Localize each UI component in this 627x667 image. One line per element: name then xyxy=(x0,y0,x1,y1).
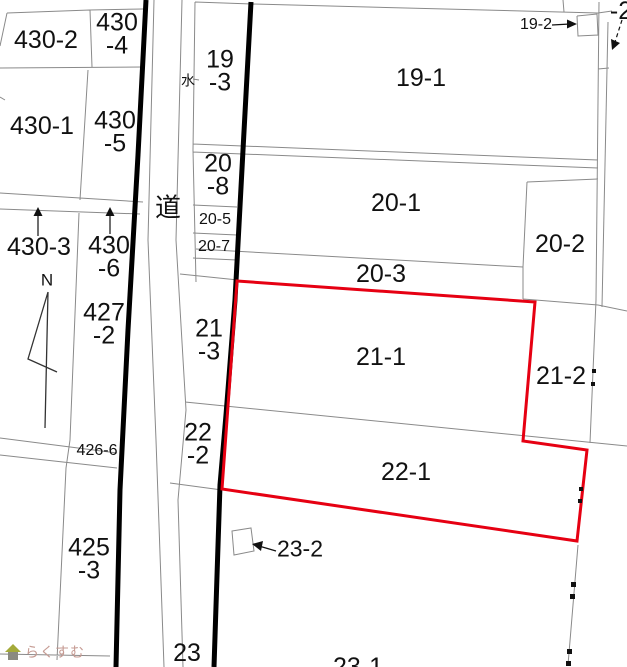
parcel-23-2-square xyxy=(232,528,254,555)
parcel-label-20-3: 20-3 xyxy=(356,263,406,286)
north-label: N xyxy=(41,272,53,287)
parcel-label-23-1: 23-1 xyxy=(333,656,383,667)
parcel-label-426-6: 426-6 xyxy=(77,444,118,458)
parcel-label-430-1: 430-1 xyxy=(10,115,74,138)
parcel-label-430-2: 430-2 xyxy=(14,29,78,52)
parcel-label-425-3: 425 -3 xyxy=(68,537,110,582)
parcel-label-19-2: 19-2 xyxy=(520,18,552,32)
north-arrow xyxy=(28,292,57,428)
parcel-label-22-2: 22 -2 xyxy=(184,422,212,467)
cadastral-map: 430-2 430 -4 430-1 430 -5 430-3 430 -6 4… xyxy=(0,0,627,667)
parcel-label-23-2: 23-2 xyxy=(277,539,323,560)
parcel-label-20-1: 20-1 xyxy=(371,192,421,215)
parcel-label-430-5: 430 -5 xyxy=(94,110,136,155)
parcel-label-427-2: 427 -2 xyxy=(83,302,125,347)
parcel-label-20-7: 20-7 xyxy=(198,240,230,254)
parcel-label-21-3: 21 -3 xyxy=(195,318,223,363)
house-icon xyxy=(5,643,22,660)
parcel-label-20-8: 20 -8 xyxy=(204,153,232,198)
parcel-label-21-1: 21-1 xyxy=(356,346,406,369)
parcel-label-21-2: 21-2 xyxy=(536,365,586,388)
edge-parcel-label-partial: -2 xyxy=(610,0,627,22)
parcel-label-19-1: 19-1 xyxy=(396,67,446,90)
parcel-label-23: 23 xyxy=(173,642,201,665)
parcel-label-430-3: 430-3 xyxy=(7,236,71,259)
parcel-label-22-1: 22-1 xyxy=(381,461,431,484)
parcel-label-20-5: 20-5 xyxy=(199,213,231,227)
water-label: 水 xyxy=(181,75,195,88)
parcel-label-19-3: 19 -3 xyxy=(206,49,234,94)
parcel-label-430-4: 430 -4 xyxy=(96,12,138,57)
road-label: 道 xyxy=(155,196,181,219)
parcel-label-430-6: 430 -6 xyxy=(88,235,130,280)
watermark-text: らくすむ xyxy=(25,645,85,659)
parcel-label-20-2: 20-2 xyxy=(535,233,585,256)
watermark: らくすむ xyxy=(5,643,85,660)
